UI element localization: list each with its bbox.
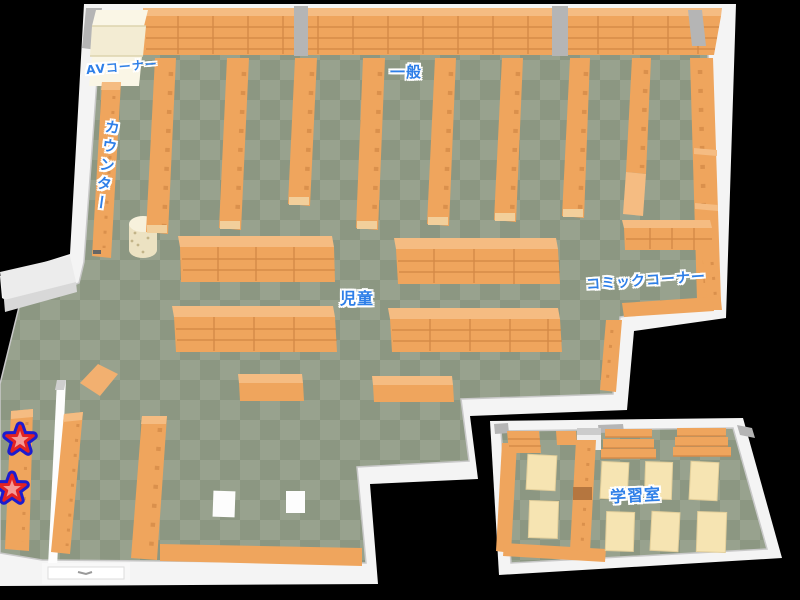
area-label-children: 児童 [340,285,374,309]
study-desk [689,461,719,500]
study-desk [528,501,558,539]
floor-map-drawing [0,0,800,600]
floor-map: AVコーナー 一般 カウンター 児童 コミックコーナー 学習室 [0,0,800,600]
pillar-icon [294,6,308,56]
entrance-door [42,563,130,584]
study-desk [650,511,680,551]
top-shelf-band [143,6,722,56]
tiered-shelf-unit [673,428,731,456]
floor-mat [286,491,305,513]
study-desk [696,512,726,553]
area-label-study-room: 学習室 [609,481,661,508]
study-desk [605,512,634,552]
tiered-shelf-unit [601,429,656,458]
study-desk [526,454,557,490]
area-label-general: 一般 [390,61,422,82]
floor-mat [213,491,236,518]
pillar-icon [552,6,568,56]
